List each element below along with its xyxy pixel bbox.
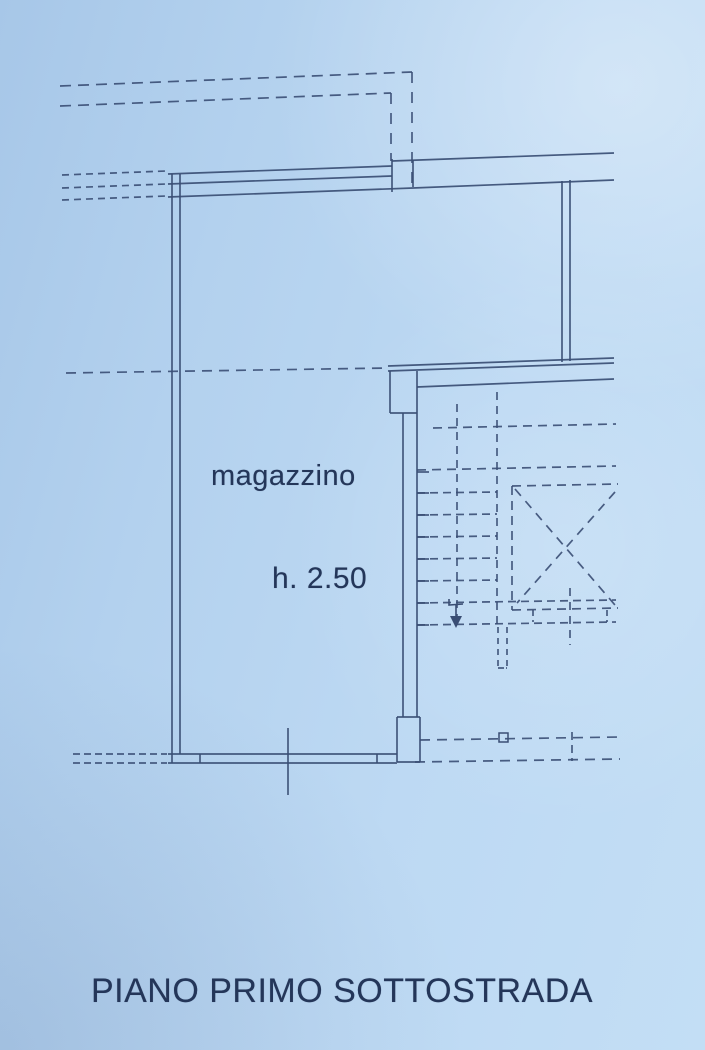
floor-plan-drawing xyxy=(0,0,705,1050)
dashed-projection-line xyxy=(420,737,620,740)
wall-line xyxy=(417,379,614,387)
dashed-projection-line xyxy=(515,489,615,605)
wall-line xyxy=(168,166,392,174)
scanned-plan-page: magazzino h. 2.50 PIANO PRIMO SOTTOSTRAD… xyxy=(0,0,705,1050)
dashed-projection-line xyxy=(512,608,618,610)
dashed-projection-line xyxy=(62,184,166,188)
dashed-projection-line xyxy=(415,759,620,762)
wall-line xyxy=(168,176,392,184)
dashed-projection-line xyxy=(66,368,388,373)
stair-direction-arrow xyxy=(450,616,462,628)
wall-line xyxy=(413,180,614,188)
dashed-projection-line xyxy=(62,171,166,175)
wall-line xyxy=(392,153,614,161)
dashed-projection-line xyxy=(417,466,616,470)
plan-marker-rect xyxy=(499,733,508,742)
dashed-projection-line xyxy=(433,424,616,428)
dashed-projection-line xyxy=(60,72,412,86)
room-name-label: magazzino xyxy=(211,462,356,491)
dashed-projection-line xyxy=(517,492,615,603)
dashed-projection-line xyxy=(417,622,616,625)
dashed-projection-line xyxy=(60,93,391,106)
dashed-projection-line xyxy=(512,484,618,486)
room-height-label: h. 2.50 xyxy=(272,564,367,594)
floor-title-label: PIANO PRIMO SOTTOSTRADA xyxy=(91,974,593,1008)
dashed-projection-line xyxy=(62,196,166,200)
wall-line xyxy=(168,188,413,197)
